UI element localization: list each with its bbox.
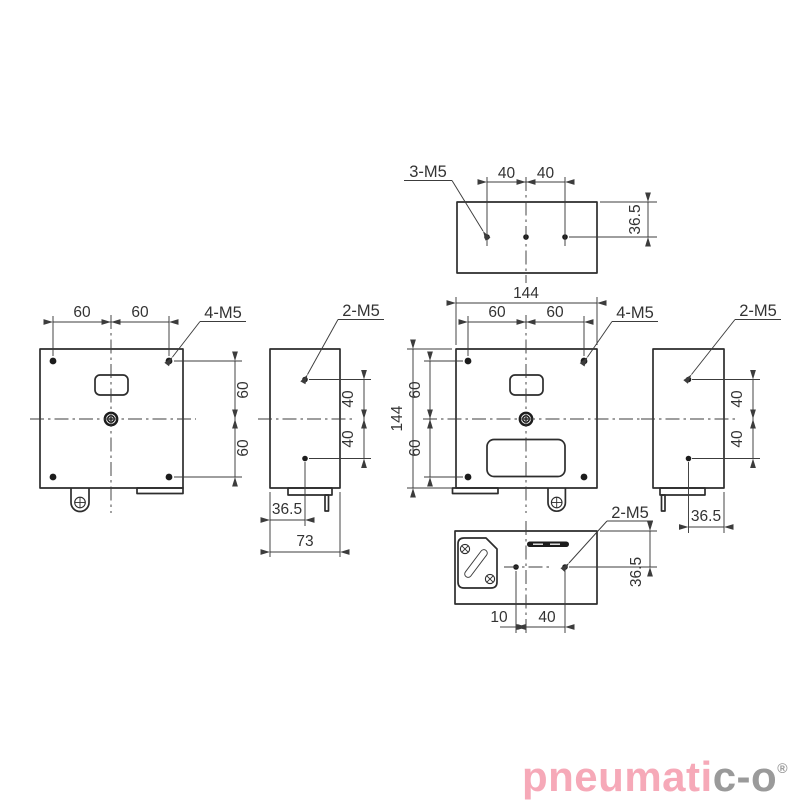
mounting-hole xyxy=(581,474,588,481)
dim-text-40: 40 xyxy=(498,165,516,182)
dim-text-60: 60 xyxy=(235,439,252,457)
dim-text-60: 60 xyxy=(73,304,91,321)
dim-text-60: 60 xyxy=(235,381,252,399)
dim-text-40: 40 xyxy=(538,609,556,626)
thread-label: 4-M5 xyxy=(204,304,242,322)
dim-text-36-5: 36.5 xyxy=(627,204,644,234)
thread-label: 3-M5 xyxy=(409,163,447,181)
mounting-hole xyxy=(166,358,173,365)
dim-text-144: 144 xyxy=(513,285,539,302)
dim-text-60: 60 xyxy=(131,304,149,321)
dim-text-144: 144 xyxy=(389,405,406,431)
dim-text-10: 10 xyxy=(490,609,508,626)
mounting-hole xyxy=(465,474,472,481)
lug-screw xyxy=(551,497,562,508)
technical-drawing: 40 40 36.5 3-M5 xyxy=(0,0,800,800)
mounting-hole xyxy=(581,358,588,365)
mounting-hole xyxy=(465,358,472,365)
dim-text-60: 60 xyxy=(546,304,564,321)
dim-text-60: 60 xyxy=(488,304,506,321)
dim-text-73: 73 xyxy=(296,533,313,550)
background xyxy=(0,0,800,800)
mounting-hole xyxy=(686,456,692,462)
dim-text-40: 40 xyxy=(729,390,746,408)
mounting-hole xyxy=(50,474,57,481)
mounting-hole xyxy=(302,377,308,383)
mounting-hole xyxy=(686,377,692,383)
vent-slot xyxy=(527,542,569,548)
thread-label: 4-M5 xyxy=(616,304,654,322)
dim-text-36-5: 36.5 xyxy=(272,501,302,518)
dim-text-40: 40 xyxy=(537,165,555,182)
mounting-hole xyxy=(302,456,308,462)
lug-screw xyxy=(75,497,86,508)
logo-text-secondary: c-o xyxy=(713,753,778,800)
dim-text-60: 60 xyxy=(407,439,424,457)
thread-label: 2-M5 xyxy=(739,302,777,320)
dim-text-36-5: 36.5 xyxy=(691,508,721,525)
logo-text: pneumatic-o® xyxy=(522,753,788,800)
dim-text-40: 40 xyxy=(340,390,357,408)
dim-text-60: 60 xyxy=(407,381,424,399)
registered-mark: ® xyxy=(777,760,788,776)
dim-text-40: 40 xyxy=(340,430,357,448)
dim-text-40: 40 xyxy=(729,430,746,448)
mounting-hole xyxy=(562,564,568,570)
thread-label: 2-M5 xyxy=(611,504,649,522)
plate-screw xyxy=(460,544,469,553)
dim-text-36-5: 36.5 xyxy=(628,557,645,587)
mounting-hole xyxy=(166,474,173,481)
logo-text-primary: pneumati xyxy=(522,753,713,800)
drawing-page: 40 40 36.5 3-M5 xyxy=(0,0,800,800)
thread-label: 2-M5 xyxy=(342,302,380,320)
brand-logo: pneumatic-o® xyxy=(522,753,788,800)
mounting-hole xyxy=(50,358,57,365)
plate-screw xyxy=(485,574,494,583)
